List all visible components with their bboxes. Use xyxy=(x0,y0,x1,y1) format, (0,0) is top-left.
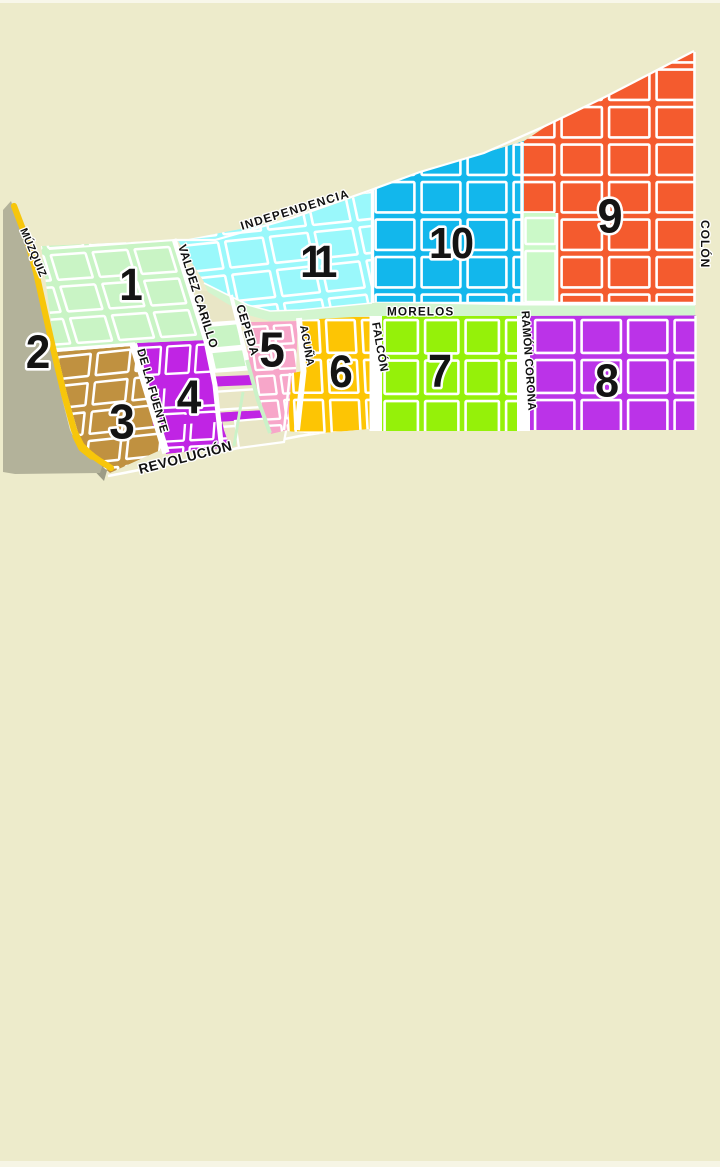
svg-text:MORELOS: MORELOS xyxy=(387,305,454,319)
svg-text:1: 1 xyxy=(119,260,143,310)
svg-text:COLÓN: COLÓN xyxy=(698,220,713,268)
svg-text:6: 6 xyxy=(329,347,353,397)
svg-text:3: 3 xyxy=(109,395,135,450)
svg-text:9: 9 xyxy=(597,189,622,243)
svg-text:10: 10 xyxy=(429,219,473,268)
svg-text:8: 8 xyxy=(595,356,619,406)
svg-text:4: 4 xyxy=(177,371,202,424)
svg-text:7: 7 xyxy=(428,346,452,396)
svg-text:2: 2 xyxy=(26,326,51,379)
svg-text:5: 5 xyxy=(259,323,285,378)
